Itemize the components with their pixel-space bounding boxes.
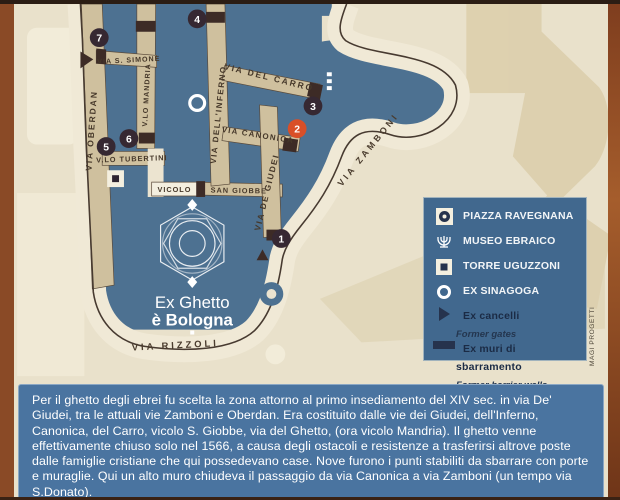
legend-label: Ex cancelli [463,310,519,322]
svg-text:3: 3 [310,102,316,113]
legend-label: PIAZZA RAVEGNANA [463,211,574,222]
legend-row-piazza: PIAZZA RAVEGNANA [432,204,582,229]
svg-text:5: 5 [103,142,109,153]
wall-mark [139,133,155,144]
legend-label: Ex muri di sbarramento [456,343,522,373]
legend-row-sinagoga: EX SINAGOGA [432,279,582,304]
map-legend: PIAZZA RAVEGNANA MUSEO EBRAICO TORRE UG [423,197,587,361]
svg-text:4: 4 [194,15,200,26]
frame-left-edge [0,0,14,500]
former-wall-dashes [327,72,332,90]
frame-top-edge [0,0,620,4]
info-paragraph: Per il ghetto degli ebrei fu scelta la z… [32,393,590,500]
legend-label: MUSEO EBRAICO [463,236,555,247]
wall-icon [432,339,456,351]
wall-mark [196,181,205,197]
legend-label: EX SINAGOGA [463,286,539,297]
label-san-giobbe: SAN GIOBBE [211,186,267,196]
marker-7: 7 [90,28,109,47]
svg-text:6: 6 [126,135,132,146]
torre-uguzzoni-symbol [107,170,124,187]
piazza-ravegnana-symbol [260,282,284,306]
marker-2: 2 [288,119,307,138]
marker-6: 6 [120,129,139,148]
synagogue-icon [432,284,456,300]
legend-label: TORRE UGUZZONI [463,261,560,272]
marker-1: 1 [272,229,291,248]
gate-icon [432,306,456,322]
legend-row-torre: TORRE UGUZZONI [432,254,582,279]
marker-3: 3 [304,97,323,116]
wall-mark [206,12,225,23]
svg-text:1: 1 [278,234,284,245]
svg-text:7: 7 [96,34,102,45]
legend-row-muri: Ex muri di sbarramento Former barrier wa… [432,337,582,370]
legend-row-cancelli: Ex cancelli Former gates [432,304,582,337]
marker-5: 5 [97,137,116,156]
marker-4: 4 [188,9,207,28]
credit-text: MAGI PROGETTI [589,307,596,366]
menorah-icon [432,233,456,250]
label-vicolo: VICOLO [157,185,191,194]
svg-text:2: 2 [294,125,300,136]
frame-right-edge [608,0,620,500]
piazza-ravegnana-icon [432,208,456,225]
logo-line2: è Bologna [152,311,234,330]
wall-mark [136,21,156,32]
legend-row-museo: MUSEO EBRAICO [432,229,582,254]
tower-icon [432,259,456,275]
ghetto-sign-photo: Ex Ghetto è Bologna VIA OBERDAN VIA S. S… [0,0,620,500]
info-panel: Per il ghetto degli ebrei fu scelta la z… [18,384,604,500]
logo-line1: Ex Ghetto [155,293,230,312]
